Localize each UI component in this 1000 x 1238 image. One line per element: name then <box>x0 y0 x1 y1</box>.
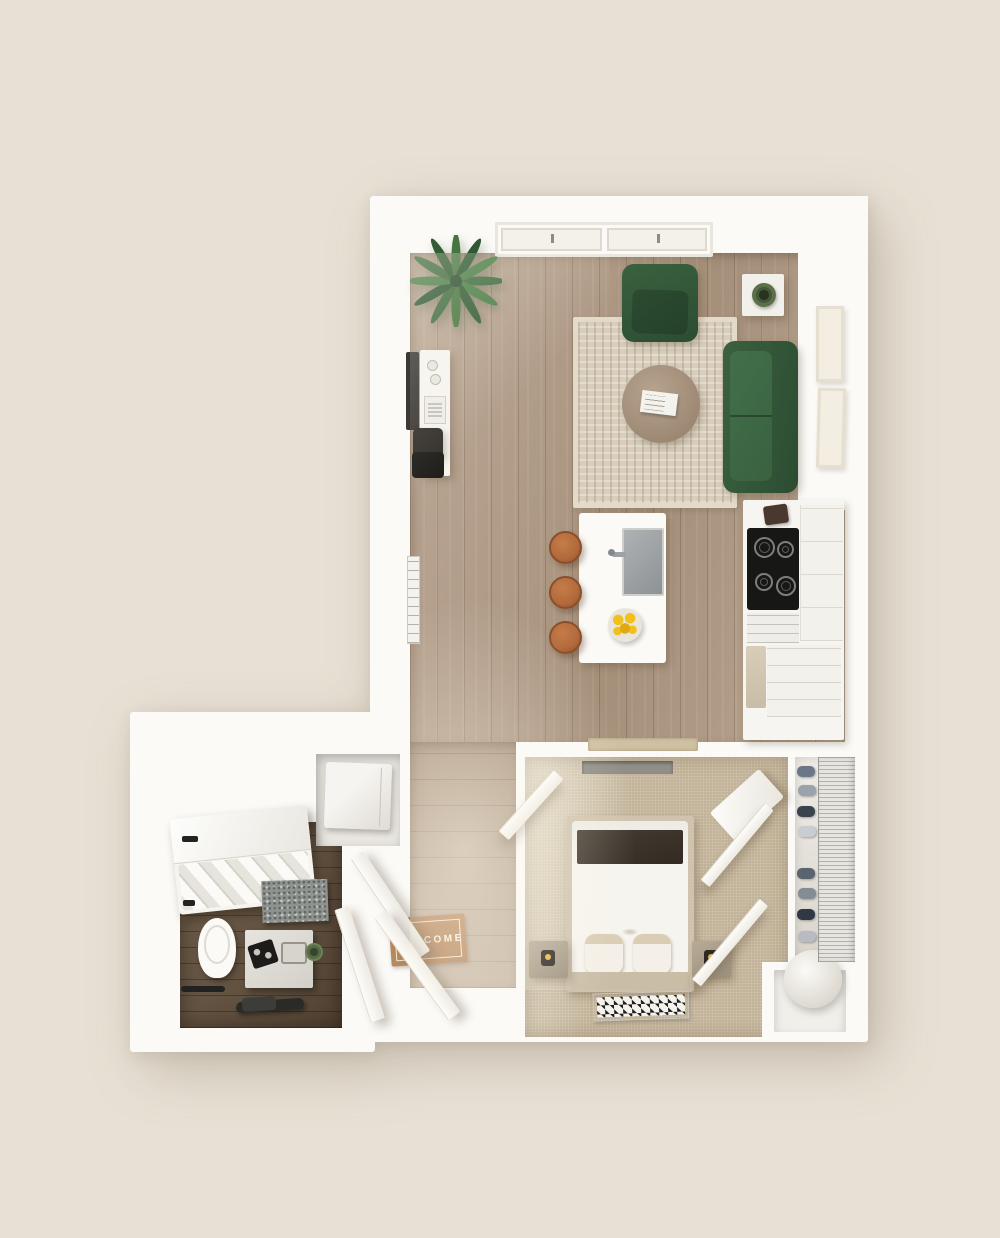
dark-throw-blanket <box>577 830 683 864</box>
grab-bar <box>181 986 225 992</box>
desk-chair-back <box>412 452 444 478</box>
desk-papers <box>424 396 446 424</box>
pillow <box>585 934 623 974</box>
small-plant <box>305 943 323 961</box>
burner-icon <box>776 576 796 596</box>
window-pane <box>607 228 708 251</box>
lemon-bowl <box>608 608 642 642</box>
window-pane <box>501 228 602 251</box>
sofa-cushion-seam <box>730 415 772 417</box>
tall-cabinets <box>800 505 843 641</box>
window-latch-icon <box>657 234 660 243</box>
magazine <box>640 390 678 416</box>
living-room-window <box>495 222 713 257</box>
kitchen-mat <box>588 738 698 751</box>
shoe <box>798 931 816 942</box>
floor-plan-canvas: WELCOME <box>0 0 1000 1238</box>
fridge-panel <box>746 646 766 708</box>
burner-icon <box>777 541 794 558</box>
bar-stool <box>549 576 582 609</box>
window-latch-icon <box>551 234 554 243</box>
potted-plant <box>752 283 776 307</box>
oven-drawer <box>747 613 799 643</box>
shoe <box>797 909 815 920</box>
shoe <box>797 868 815 879</box>
island-sink <box>622 528 664 596</box>
faucet-base <box>608 549 615 556</box>
desk-cup <box>427 360 438 371</box>
pillow <box>633 934 671 974</box>
vanity-sink <box>281 942 307 964</box>
green-sofa <box>723 341 798 493</box>
shower-faucet <box>182 836 198 842</box>
wall-art-frame <box>816 388 846 469</box>
coffee-maker <box>763 503 789 525</box>
green-armchair <box>622 264 698 342</box>
marble-backsplash <box>261 879 328 923</box>
bar-stool <box>549 621 582 654</box>
nightstand <box>529 941 568 978</box>
wall-tv <box>406 352 419 430</box>
towel <box>242 996 277 1012</box>
bedroom-transom-window <box>582 761 673 774</box>
headboard <box>570 972 690 990</box>
table-lamp <box>541 950 555 966</box>
shoe <box>797 766 815 777</box>
shoe <box>798 826 816 837</box>
wire-shelving <box>818 757 855 962</box>
desk-cup <box>430 374 441 385</box>
shoe <box>798 888 816 899</box>
toilet-paper-holder <box>183 900 195 906</box>
palm-plant <box>410 235 502 327</box>
shoe <box>797 806 815 817</box>
wall-mirror <box>407 556 420 644</box>
shoe <box>798 785 816 796</box>
patterned-foot-rug <box>593 990 690 1021</box>
lower-cabinets <box>767 645 841 717</box>
burner-icon <box>755 573 773 591</box>
bar-stool <box>549 531 582 564</box>
toilet <box>198 918 236 978</box>
cooktop-stove <box>747 528 799 610</box>
washer-dryer <box>324 762 392 830</box>
burner-icon <box>754 537 775 558</box>
wall-art-frame <box>816 306 844 382</box>
